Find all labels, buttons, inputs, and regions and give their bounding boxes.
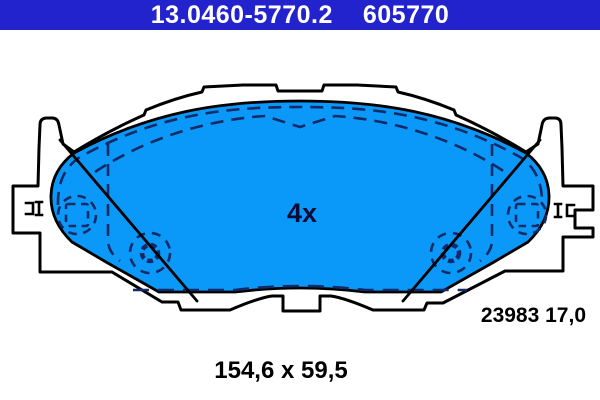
brake-pad-technical-drawing: 4x 23983 17,0 154,6 x 59,5 xyxy=(0,30,600,400)
ate-brake-pad-datasheet: 13.0460-5770.2 605770 xyxy=(0,0,600,400)
quantity-label: 4x xyxy=(287,198,317,228)
part-number-header: 13.0460-5770.2 605770 xyxy=(0,0,600,30)
wva-number-thickness-label: 23983 17,0 xyxy=(481,304,586,327)
part-number: 13.0460-5770.2 xyxy=(151,1,333,30)
friction-material xyxy=(51,101,549,292)
friction-pad-surface xyxy=(51,101,549,292)
ate-reference-number: 605770 xyxy=(363,1,449,30)
pad-dimensions-label: 154,6 x 59,5 xyxy=(214,357,347,384)
technical-drawing-area: 4x 23983 17,0 154,6 x 59,5 xyxy=(0,30,600,400)
